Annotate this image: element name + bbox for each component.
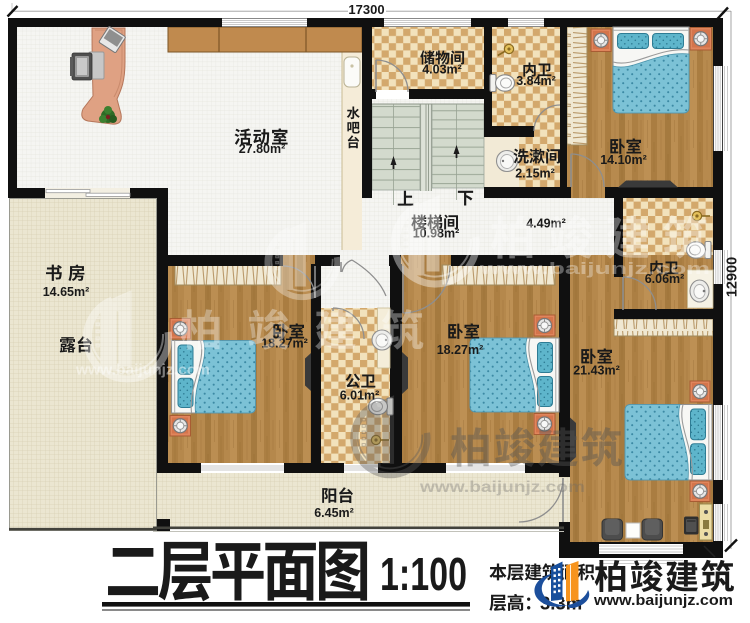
svg-text:www.baijunjz.com: www.baijunjz.com bbox=[75, 362, 210, 379]
svg-text:www.baijunjz.com: www.baijunjz.com bbox=[478, 259, 710, 278]
svg-text:12900: 12900 bbox=[725, 257, 741, 297]
svg-text:3.84m²: 3.84m² bbox=[516, 74, 556, 88]
svg-text:4.03m²: 4.03m² bbox=[422, 63, 462, 77]
svg-text:14.10m²: 14.10m² bbox=[600, 153, 647, 167]
svg-text:www.baijunjz.com: www.baijunjz.com bbox=[419, 479, 585, 496]
svg-text:1:100: 1:100 bbox=[380, 548, 467, 600]
svg-text:17300: 17300 bbox=[348, 2, 384, 17]
svg-text:2.15m²: 2.15m² bbox=[515, 167, 555, 181]
svg-text:21.43m²: 21.43m² bbox=[573, 364, 620, 378]
svg-text:18.27m²: 18.27m² bbox=[437, 343, 484, 357]
svg-text:www.baijunjz.com: www.baijunjz.com bbox=[593, 592, 733, 609]
svg-text:6.01m²: 6.01m² bbox=[340, 389, 380, 403]
svg-text:6.45m²: 6.45m² bbox=[314, 506, 354, 520]
svg-text:14.65m²: 14.65m² bbox=[43, 285, 90, 299]
svg-text:27.80m²: 27.80m² bbox=[239, 142, 286, 156]
